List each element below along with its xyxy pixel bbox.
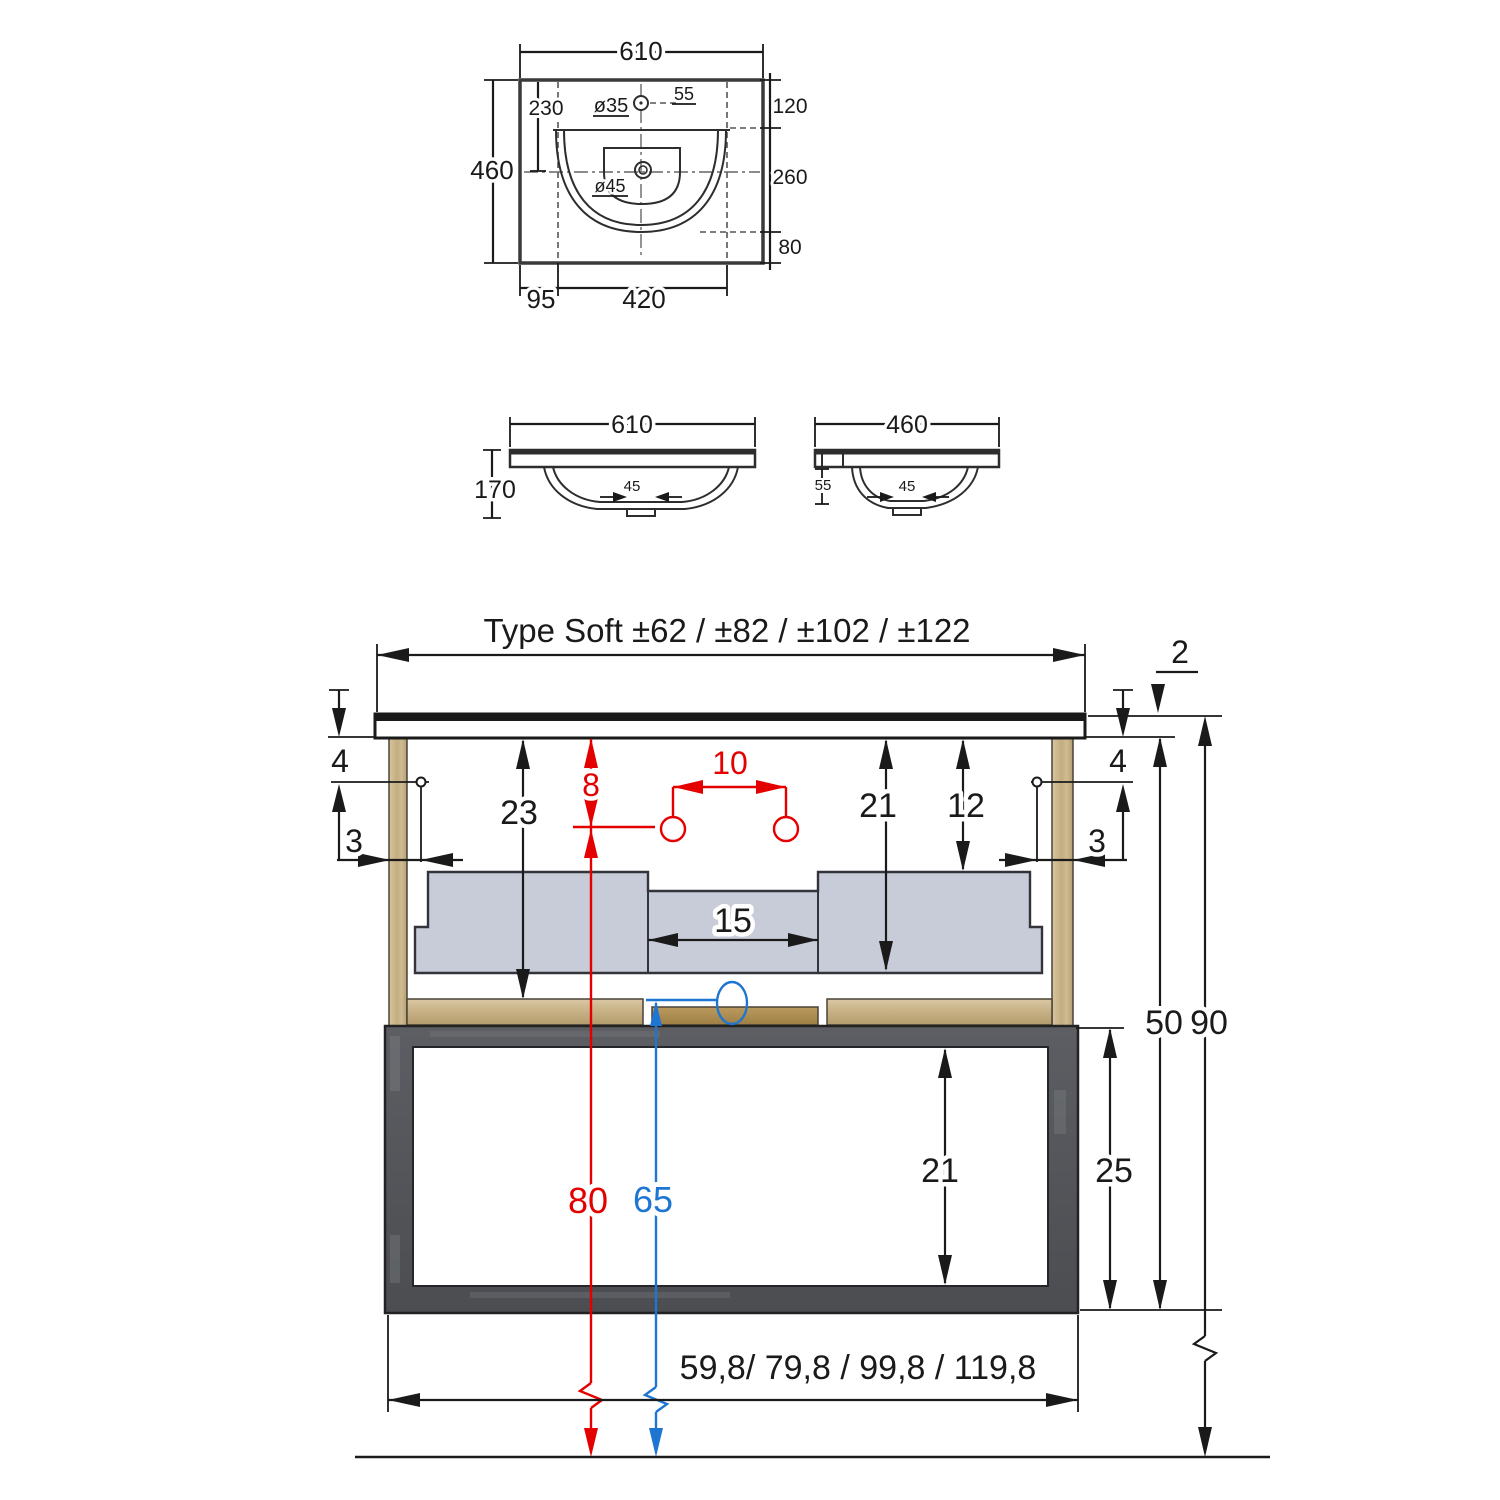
top-view: 610 460 230 ø35 55 ø45 120 260 80 95 — [470, 36, 807, 314]
fixing-point-left — [661, 817, 685, 841]
vanity-technical-drawing: 610 460 230 ø35 55 ø45 120 260 80 95 — [0, 0, 1500, 1500]
drawer-box-frame — [385, 1026, 1078, 1313]
drain-stub-side — [893, 508, 921, 515]
drawer-inner-height-label: 21 — [921, 1152, 959, 1190]
fixing-point-right — [774, 817, 798, 841]
red-outlet-height-label: 80 — [568, 1180, 608, 1221]
cabinet-widths-label: 59,8/ 79,8 / 99,8 / 119,8 — [680, 1349, 1037, 1387]
left-screw-down-label: 4 — [331, 743, 349, 779]
plan-depth-label: 460 — [470, 155, 513, 185]
fixing-drop-label: 8 — [582, 767, 600, 803]
plan-front-gap-label: 120 — [772, 95, 807, 118]
blue-outlet-height-label: 65 — [633, 1179, 673, 1220]
plan-width-label: 610 — [619, 36, 662, 66]
front-height-label: 170 — [474, 476, 516, 504]
top-to-shelf-label: 23 — [500, 794, 538, 832]
total-height-label: 90 — [1190, 1004, 1228, 1042]
drain-stub-front — [627, 509, 655, 516]
front-drain-label: 45 — [624, 478, 641, 495]
drawer-box-height-label: 25 — [1095, 1152, 1133, 1190]
right-screw-in-label: 3 — [1088, 823, 1106, 859]
shelf-board-right — [827, 999, 1052, 1025]
plan-side-margin-label: 95 — [527, 284, 556, 314]
front-section-view: 610 170 45 — [474, 411, 755, 518]
plan-basin-length-label: 260 — [772, 166, 807, 189]
left-screw-in-label: 3 — [345, 823, 363, 859]
left-screw-hole — [417, 778, 426, 787]
recess-width-label: 15 — [714, 902, 752, 940]
plan-tap-hole-label: ø35 — [594, 95, 628, 117]
shelf-board-center — [652, 1007, 818, 1025]
plan-basin-width-label: 420 — [622, 284, 665, 314]
side-section-view: 460 55 45 — [815, 411, 999, 515]
drawing-svg: 610 460 230 ø35 55 ø45 120 260 80 95 — [0, 0, 1500, 1500]
main-front-drawing: Type Soft ±62 / ±82 / ±102 / ±122 2 4 3 … — [328, 612, 1270, 1457]
basin-clearance-label: 12 — [947, 787, 985, 825]
side-drain-label: 45 — [899, 478, 916, 495]
countertop-thickness-label: 2 — [1171, 634, 1189, 670]
front-width-label: 610 — [611, 411, 653, 439]
side-edge-detail-label: 55 — [815, 477, 832, 494]
fixing-spacing-label: 10 — [712, 745, 748, 781]
basin-height-label: 21 — [859, 787, 897, 825]
shelf-board-left — [407, 999, 643, 1025]
main-title: Type Soft ±62 / ±82 / ±102 / ±122 — [483, 612, 970, 649]
plan-tap-offset-label: 230 — [528, 97, 563, 120]
cabinet-height-label: 50 — [1145, 1004, 1183, 1042]
plan-back-gap-label: 80 — [778, 236, 801, 259]
right-screw-down-label: 4 — [1109, 743, 1127, 779]
plan-drain-label: ø45 — [594, 176, 625, 196]
plan-tap-side-label: 55 — [674, 84, 694, 104]
side-depth-label: 460 — [886, 411, 928, 439]
right-screw-hole — [1033, 778, 1042, 787]
